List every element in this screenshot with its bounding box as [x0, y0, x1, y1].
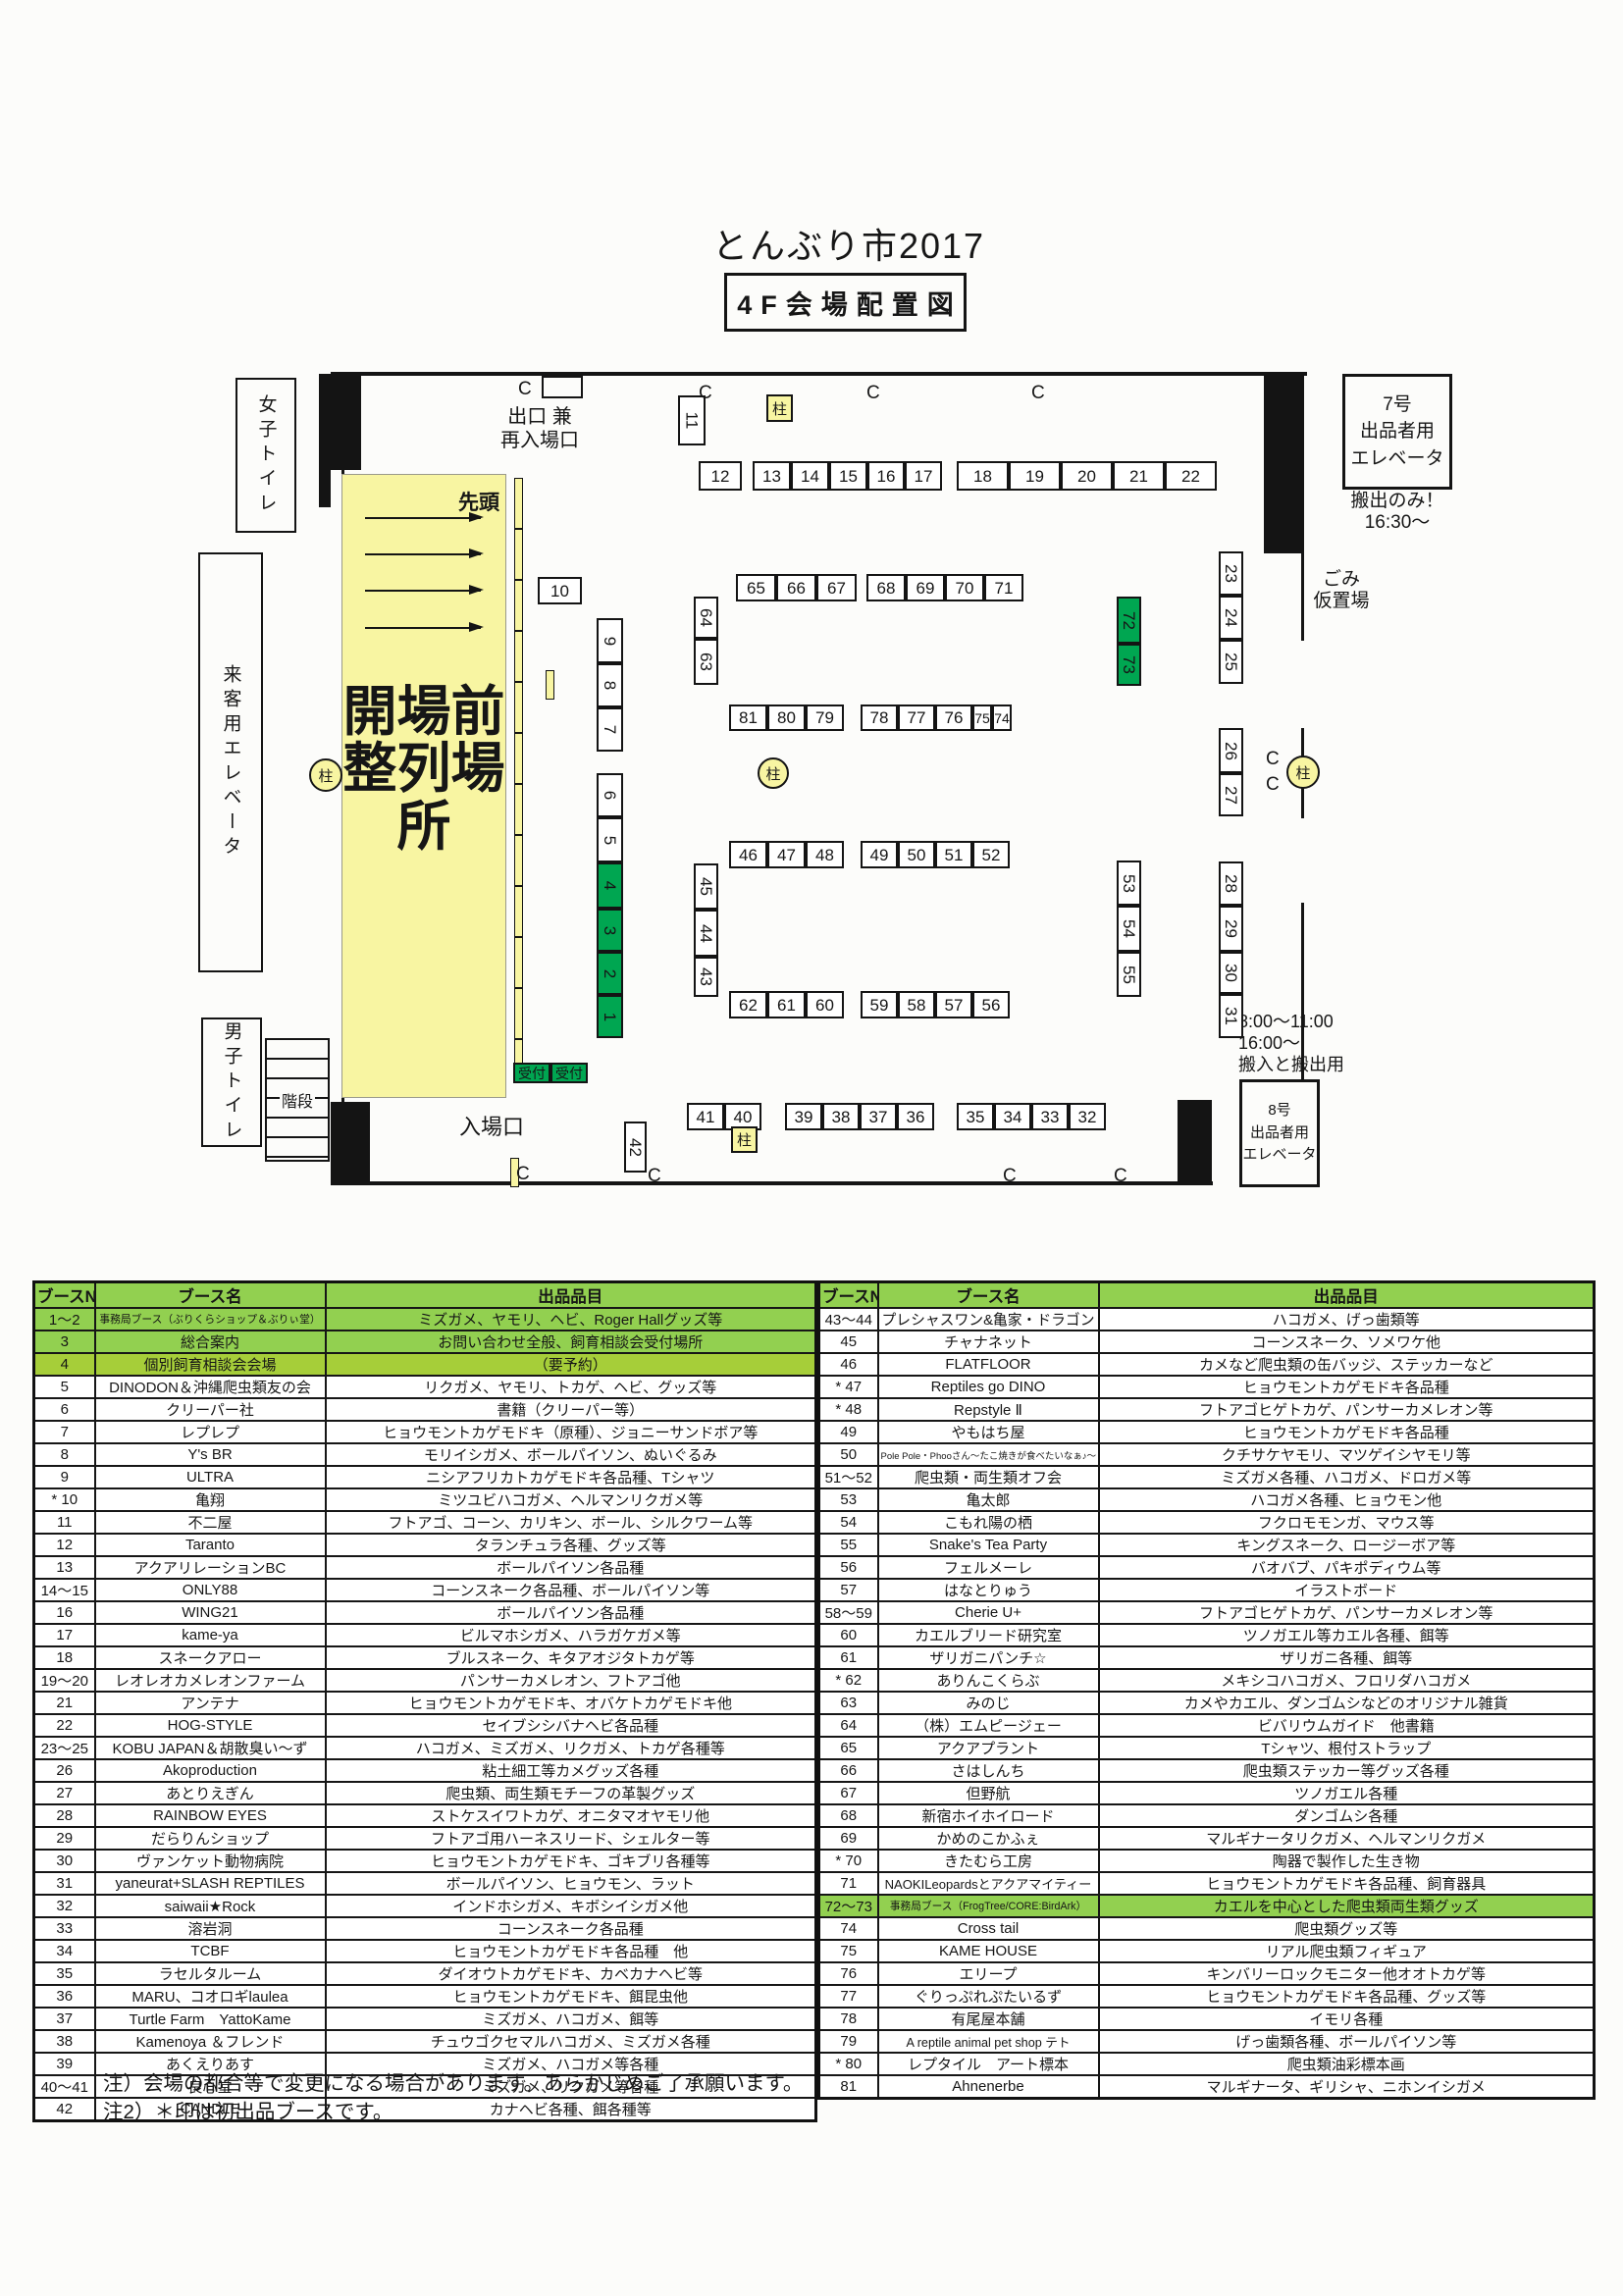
- elevator-7: 7号 出品者用 エレベータ: [1342, 374, 1452, 490]
- cell-items: イモリ各種: [1099, 2008, 1595, 2030]
- cell-no: 17: [34, 1624, 95, 1646]
- queue-arrow: [365, 553, 481, 555]
- cell-items: マルギナータ、ギリシャ、ニホンイシガメ: [1099, 2075, 1595, 2099]
- cell-no: 12: [34, 1534, 95, 1556]
- visitor-elevator: 来客用エレベータ: [198, 552, 263, 972]
- cell-no: 7: [34, 1421, 95, 1443]
- booth-43: 43: [694, 957, 718, 997]
- cell-no: 65: [819, 1737, 878, 1759]
- cell-items: ミズガメ、ヤモリ、ヘビ、Roger Hallグッズ等: [326, 1308, 816, 1331]
- booth-row-71: 71NAOKILeopardsとアクアマイティーヒョウモントカゲモドキ各品種、飼…: [819, 1872, 1595, 1895]
- cell-no: 54: [819, 1511, 878, 1534]
- booth-row-64: 64（株）エムピージェービバリウムガイド 他書籍: [819, 1714, 1595, 1737]
- pillar-marker: 柱: [758, 757, 789, 789]
- booth-53: 53: [1117, 861, 1141, 906]
- reception-desk: 受付: [550, 1063, 588, 1083]
- cell-items: 陶器で製作した生き物: [1099, 1850, 1595, 1872]
- booth-10: 10: [538, 577, 582, 604]
- booth-23: 23: [1219, 551, 1243, 596]
- booth-row-54: 54こもれ陽の栖フクロモモンガ、マウス等: [819, 1511, 1595, 1534]
- cell-items: ダンゴムシ各種: [1099, 1804, 1595, 1827]
- entrance-label: 入場口: [459, 1115, 524, 1140]
- queue-lane-strip: [514, 478, 523, 1067]
- cell-no: 22: [34, 1714, 95, 1737]
- booth-22: 22: [1165, 461, 1217, 491]
- column-marker: C: [1266, 749, 1280, 770]
- booth-74: 74: [992, 704, 1012, 731]
- cell-items: フトアゴヒゲトカゲ、パンサーカメレオン等: [1099, 1601, 1595, 1624]
- cell-no: 11: [34, 1511, 95, 1534]
- booth-5: 5: [597, 817, 623, 862]
- cell-no: 27: [34, 1782, 95, 1804]
- booth-row-69: 69かめのこかふぇマルギナータリクガメ、ヘルマンリクガメ: [819, 1827, 1595, 1850]
- booth-63: 63: [694, 639, 718, 685]
- booth-30: 30: [1219, 952, 1243, 994]
- column-header: ブース名: [95, 1282, 326, 1309]
- booth-44: 44: [694, 910, 718, 957]
- cell-no: 14～15: [34, 1579, 95, 1601]
- cell-no: 69: [819, 1827, 878, 1850]
- booth-69: 69: [906, 574, 945, 601]
- booth-row-27: 27あとりえぎん爬虫類、両生類モチーフの革製グッズ: [34, 1782, 816, 1804]
- cell-no: 74: [819, 1917, 878, 1940]
- womens-toilet: 女子トイレ: [236, 378, 296, 533]
- cell-items: 粘土細工等カメグッズ各種: [326, 1759, 816, 1782]
- booth-34: 34: [994, 1103, 1031, 1130]
- cell-no: 28: [34, 1804, 95, 1827]
- cell-items: ヒョウモントカゲモドキ、ゴキブリ各種等: [326, 1850, 816, 1872]
- column-marker: C: [516, 1164, 530, 1185]
- cell-items: ヒョウモントカゲモドキ（原種）、ジョニーサンドボア等: [326, 1421, 816, 1443]
- cell-name: Taranto: [95, 1534, 326, 1556]
- stairs-label: 階段: [280, 1087, 315, 1113]
- booth-80: 80: [767, 704, 806, 731]
- cell-items: ハコガメ、ミズガメ、リクガメ、トカゲ各種等: [326, 1737, 816, 1759]
- booth-row-1～2: 1～2事務局ブース（ぶりくらショップ＆ぶりぃ堂）ミズガメ、ヤモリ、ヘビ、Roge…: [34, 1308, 816, 1331]
- cell-no: 76: [819, 1962, 878, 1985]
- cell-name: はなとりゅう: [878, 1579, 1099, 1601]
- cell-items: ヒョウモントカゲモドキ、オバケトカゲモドキ他: [326, 1692, 816, 1714]
- cell-name: yaneurat+SLASH REPTILES: [95, 1872, 326, 1895]
- cell-items: ボールパイソン各品種: [326, 1556, 816, 1579]
- booth-55: 55: [1117, 952, 1141, 997]
- booth-row-34: 34TCBFヒョウモントカゲモドキ各品種 他: [34, 1940, 816, 1962]
- visitor-elevator-label: 来客用エレベータ: [218, 664, 244, 861]
- cell-name: アクアプラント: [878, 1737, 1099, 1759]
- cell-items: ハコガメ、げっ歯類等: [1099, 1308, 1595, 1331]
- cell-name: saiwaii★Rock: [95, 1895, 326, 1917]
- cell-name: かめのこかふぇ: [878, 1827, 1099, 1850]
- booth-3: 3: [597, 909, 623, 952]
- cell-items: カメなど爬虫類の缶バッジ、ステッカーなど: [1099, 1353, 1595, 1376]
- cell-no: 33: [34, 1917, 95, 1940]
- booth-table-right: ブースNo.ブース名出品品目43～44プレシャスワン&亀家・ドラゴンハコガメ、げ…: [817, 1280, 1596, 2100]
- booth-41: 41: [687, 1103, 724, 1130]
- booth-33: 33: [1031, 1103, 1069, 1130]
- booth-row-80: * 80レプタイル アート標本爬虫類油彩標本画: [819, 2053, 1595, 2075]
- cell-no: 53: [819, 1488, 878, 1511]
- booth-row-65: 65アクアプラントTシャツ、根付ストラップ: [819, 1737, 1595, 1759]
- cell-items: 爬虫類ステッカー等グッズ各種: [1099, 1759, 1595, 1782]
- booth-table-left: ブースNo.ブース名出品品目1～2事務局ブース（ぶりくらショップ＆ぶりぃ堂）ミズ…: [32, 1280, 817, 2122]
- elevator-7-note: 搬出のみ！ 16:30～: [1342, 491, 1452, 535]
- cell-items: ニシアフリカトカゲモドキ各品種、Tシャツ: [326, 1466, 816, 1488]
- booth-56: 56: [972, 991, 1010, 1018]
- booth-row-51～52: 51～52爬虫類・両生類オフ会ミズガメ各種、ハコガメ、ドロガメ等: [819, 1466, 1595, 1488]
- booth-row-6: 6クリーパー社書籍（クリーパー等）: [34, 1398, 816, 1421]
- booth-row-4: 4個別飼育相談会会場（要予約）: [34, 1353, 816, 1376]
- column-marker: C: [1266, 774, 1280, 796]
- cell-no: 32: [34, 1895, 95, 1917]
- column-header: ブース名: [878, 1282, 1099, 1309]
- booth-row-11: 11不二屋フトアゴ、コーン、カリキン、ボール、シルクワーム等: [34, 1511, 816, 1534]
- cell-no: 34: [34, 1940, 95, 1962]
- garbage-area-label: ごみ 仮置場: [1305, 569, 1378, 613]
- booth-70: 70: [945, 574, 984, 601]
- cell-name: TCBF: [95, 1940, 326, 1962]
- booth-row-57: 57はなとりゅうイラストボード: [819, 1579, 1595, 1601]
- cell-no: * 10: [34, 1488, 95, 1511]
- cell-items: ヒョウモントカゲモドキ各品種、飼育器具: [1099, 1872, 1595, 1895]
- cell-items: キングスネーク、ロージーボア等: [1099, 1534, 1595, 1556]
- cell-name: Snake's Tea Party: [878, 1534, 1099, 1556]
- cell-no: * 62: [819, 1669, 878, 1692]
- booth-row-68: 68新宿ホイホイロードダンゴムシ各種: [819, 1804, 1595, 1827]
- cell-no: 63: [819, 1692, 878, 1714]
- booth-row-72～73: 72～73事務局ブース（FrogTree/CORE:BirdArk）カエルを中心…: [819, 1895, 1595, 1917]
- cell-no: 64: [819, 1714, 878, 1737]
- wall-block-top-left: [319, 374, 361, 470]
- cell-items: 書籍（クリーパー等）: [326, 1398, 816, 1421]
- booth-21: 21: [1113, 461, 1165, 491]
- booth-24: 24: [1219, 596, 1243, 640]
- cell-no: * 47: [819, 1376, 878, 1398]
- booth-row-46: 46FLATFLOORカメなど爬虫類の缶バッジ、ステッカーなど: [819, 1353, 1595, 1376]
- booth-50: 50: [898, 841, 935, 868]
- booth-row-16: 16WING21ボールパイソン各品種: [34, 1601, 816, 1624]
- cell-name: レプレプ: [95, 1421, 326, 1443]
- booth-38: 38: [822, 1103, 860, 1130]
- cell-name: 事務局ブース（ぶりくらショップ＆ぶりぃ堂）: [95, 1308, 326, 1331]
- cell-name: RAINBOW EYES: [95, 1804, 326, 1827]
- booth-row-62: * 62ありんこくらぶメキシコハコガメ、フロリダハコガメ: [819, 1669, 1595, 1692]
- cell-no: * 80: [819, 2053, 878, 2075]
- cell-name: Y's BR: [95, 1443, 326, 1466]
- booth-68: 68: [866, 574, 906, 601]
- cell-items: セイブシシバナヘビ各品種: [326, 1714, 816, 1737]
- cell-no: 21: [34, 1692, 95, 1714]
- cell-name: アンテナ: [95, 1692, 326, 1714]
- cell-items: フトアゴ、コーン、カリキン、ボール、シルクワーム等: [326, 1511, 816, 1534]
- queue-area: 先頭 開場前整列場所: [341, 474, 506, 1098]
- column-marker: C: [1114, 1166, 1127, 1187]
- booth-row-67: 67但野航ツノガエル各種: [819, 1782, 1595, 1804]
- cell-name: Cross tail: [878, 1917, 1099, 1940]
- booth-52: 52: [972, 841, 1010, 868]
- booth-32: 32: [1069, 1103, 1106, 1130]
- cell-name: DINODON＆沖縄爬虫類友の会: [95, 1376, 326, 1398]
- booth-row-58～59: 58～59Cherie U+フトアゴヒゲトカゲ、パンサーカメレオン等: [819, 1601, 1595, 1624]
- cell-no: 6: [34, 1398, 95, 1421]
- cell-items: 爬虫類、両生類モチーフの革製グッズ: [326, 1782, 816, 1804]
- cell-items: リクガメ、ヤモリ、トカゲ、ヘビ、グッズ等: [326, 1376, 816, 1398]
- cell-items: ミズガメ、ハコガメ、餌等: [326, 2008, 816, 2030]
- booth-row-56: 56フェルメーレバオバブ、パキポディウム等: [819, 1556, 1595, 1579]
- booth-67: 67: [816, 574, 857, 601]
- cell-name: みのじ: [878, 1692, 1099, 1714]
- floor-plan: 女子トイレ 来客用エレベータ 男子トイレ 階段 出口 兼 再入場口 入場口 先頭…: [0, 0, 1623, 1266]
- cell-no: 50: [819, 1443, 878, 1466]
- cell-no: 72～73: [819, 1895, 878, 1917]
- booth-19: 19: [1009, 461, 1061, 491]
- column-header: ブースNo.: [34, 1282, 95, 1309]
- booth-row-22: 22HOG-STYLEセイブシシバナヘビ各品種: [34, 1714, 816, 1737]
- cell-name: 亀翔: [95, 1488, 326, 1511]
- booth-row-10: * 10亀翔ミツユビハコガメ、ヘルマンリクガメ等: [34, 1488, 816, 1511]
- cell-no: 18: [34, 1646, 95, 1669]
- booth-57: 57: [935, 991, 972, 1018]
- wall-block-top-right: [1264, 374, 1304, 553]
- cell-items: ハコガメ各種、ヒョウモン他: [1099, 1488, 1595, 1511]
- booth-77: 77: [898, 704, 935, 731]
- booth-row-78: 78有尾屋本舗イモリ各種: [819, 2008, 1595, 2030]
- booth-62: 62: [729, 991, 767, 1018]
- booth-28: 28: [1219, 861, 1243, 906]
- cell-name: kame-ya: [95, 1624, 326, 1646]
- wall-block-top-left-2: [319, 470, 331, 507]
- cell-items: げっ歯類各種、ボールパイソン等: [1099, 2030, 1595, 2053]
- booth-row-53: 53亀太郎ハコガメ各種、ヒョウモン他: [819, 1488, 1595, 1511]
- cell-items: カメやカエル、ダンゴムシなどのオリジナル雑貨: [1099, 1692, 1595, 1714]
- cell-items: メキシコハコガメ、フロリダハコガメ: [1099, 1669, 1595, 1692]
- cell-items: （要予約）: [326, 1353, 816, 1376]
- column-marker: C: [1003, 1166, 1017, 1187]
- cell-no: * 70: [819, 1850, 878, 1872]
- cell-no: 51～52: [819, 1466, 878, 1488]
- booth-27: 27: [1219, 773, 1243, 816]
- booth-row-28: 28RAINBOW EYESストケスイワトカゲ、オニタマオヤモリ他: [34, 1804, 816, 1827]
- booth-row-79: 79A reptile animal pet shop テトげっ歯類各種、ボール…: [819, 2030, 1595, 2053]
- footnote-1: 注）会場の都合等で変更になる場合があります。あらかじめご了承願います。: [103, 2070, 803, 2099]
- booth-45: 45: [694, 863, 718, 910]
- cell-name: フェルメーレ: [878, 1556, 1099, 1579]
- booth-17: 17: [905, 461, 942, 491]
- cell-name: Kamenoya ＆フレンド: [95, 2030, 326, 2053]
- cell-items: タランチュラ各種、グッズ等: [326, 1534, 816, 1556]
- cell-no: 60: [819, 1624, 878, 1646]
- booth-4: 4: [597, 862, 623, 909]
- booth-row-35: 35ラセルタルームダイオウトカゲモドキ、カベカナヘビ等: [34, 1962, 816, 1985]
- booth-8: 8: [597, 663, 623, 707]
- cell-no: 43～44: [819, 1308, 878, 1331]
- booth-row-37: 37Turtle Farm YattoKameミズガメ、ハコガメ、餌等: [34, 2008, 816, 2030]
- cell-name: プレシャスワン&亀家・ドラゴン: [878, 1308, 1099, 1331]
- cell-no: 79: [819, 2030, 878, 2053]
- cell-no: 1～2: [34, 1308, 95, 1331]
- cell-name: 但野航: [878, 1782, 1099, 1804]
- cell-name: Reptiles go DINO: [878, 1376, 1099, 1398]
- booth-row-30: 30ヴァンケット動物病院ヒョウモントカゲモドキ、ゴキブリ各種等: [34, 1850, 816, 1872]
- footnotes: 注）会場の都合等で変更になる場合があります。あらかじめご了承願います。 注2）＊…: [103, 2070, 803, 2126]
- booth-15: 15: [829, 461, 867, 491]
- booth-row-38: 38Kamenoya ＆フレンドチュウゴクセマルハコガメ、ミズガメ各種: [34, 2030, 816, 2053]
- cell-name: 爬虫類・両生類オフ会: [878, 1466, 1099, 1488]
- cell-no: 23～25: [34, 1737, 95, 1759]
- cell-items: パンサーカメレオン、フトアゴ他: [326, 1669, 816, 1692]
- booth-13: 13: [753, 461, 791, 491]
- booth-row-17: 17kame-yaビルマホシガメ、ハラガケガメ等: [34, 1624, 816, 1646]
- booth-row-50: 50Pole Pole・Phooさん～たこ焼きが食べたいなぁ♪～クチサケヤモリ、…: [819, 1443, 1595, 1466]
- cell-no: 78: [819, 2008, 878, 2030]
- booth-65: 65: [736, 574, 776, 601]
- cell-items: ボールパイソン、ヒョウモン、ラット: [326, 1872, 816, 1895]
- booth-row-48: * 48Repstyle Ⅱフトアゴヒゲトカゲ、パンサーカメレオン等: [819, 1398, 1595, 1421]
- cell-name: MARU、コオロギlaulea: [95, 1985, 326, 2008]
- booth-46: 46: [729, 841, 767, 868]
- booth-row-60: 60カエルブリード研究室ツノガエル等カエル各種、餌等: [819, 1624, 1595, 1646]
- cell-items: クチサケヤモリ、マツゲイシヤモリ等: [1099, 1443, 1595, 1466]
- wall-block-bottom-left: [331, 1102, 370, 1185]
- booth-row-45: 45チャナネットコーンスネーク、ソメワケ他: [819, 1331, 1595, 1353]
- cell-no: 77: [819, 1985, 878, 2008]
- cell-items: ツノガエル等カエル各種、餌等: [1099, 1624, 1595, 1646]
- booth-row-70: * 70きたむら工房陶器で製作した生き物: [819, 1850, 1595, 1872]
- booth-31: 31: [1219, 994, 1243, 1038]
- elevator-8-note: 8:00～11:00 16:00～ 搬入と搬出用: [1238, 1012, 1344, 1076]
- wall-top: [331, 372, 1307, 376]
- booth-73: 73: [1117, 644, 1141, 686]
- booth-36: 36: [897, 1103, 934, 1130]
- booth-18: 18: [957, 461, 1009, 491]
- mens-toilet: 男子トイレ: [201, 1018, 262, 1147]
- cell-items: フクロモモンガ、マウス等: [1099, 1511, 1595, 1534]
- table-header-row: ブースNo.ブース名出品品目: [819, 1282, 1595, 1309]
- column-header: 出品品目: [326, 1282, 816, 1309]
- cell-no: 30: [34, 1850, 95, 1872]
- queue-arrow: [365, 590, 481, 592]
- cell-items: ボールパイソン各品種: [326, 1601, 816, 1624]
- booth-row-29: 29だらりんショップフトアゴ用ハーネスリード、シェルター等: [34, 1827, 816, 1850]
- cell-no: 39: [34, 2053, 95, 2075]
- booth-47: 47: [767, 841, 806, 868]
- booth-75: 75: [972, 704, 992, 731]
- booth-row-21: 21アンテナヒョウモントカゲモドキ、オバケトカゲモドキ他: [34, 1692, 816, 1714]
- booth-79: 79: [806, 704, 844, 731]
- cell-items: カエルを中心とした爬虫類両生類グッズ: [1099, 1895, 1595, 1917]
- cell-items: キンバリーロックモニター他オオトカゲ等: [1099, 1962, 1595, 1985]
- footnote-2: 注2）＊印は初出品ブースです。: [103, 2099, 803, 2127]
- cell-no: 36: [34, 1985, 95, 2008]
- booth-64: 64: [694, 597, 718, 639]
- booth-row-81: 81Ahnenerbeマルギナータ、ギリシャ、ニホンイシガメ: [819, 2075, 1595, 2099]
- booth-row-55: 55Snake's Tea Partyキングスネーク、ロージーボア等: [819, 1534, 1595, 1556]
- booth-61: 61: [767, 991, 806, 1018]
- booth-row-23～25: 23～25KOBU JAPAN＆胡散臭い～ずハコガメ、ミズガメ、リクガメ、トカゲ…: [34, 1737, 816, 1759]
- booth-row-61: 61ザリガニパンチ☆ザリガニ各種、餌等: [819, 1646, 1595, 1669]
- cell-name: 個別飼育相談会会場: [95, 1353, 326, 1376]
- cell-no: 29: [34, 1827, 95, 1850]
- cell-no: 38: [34, 2030, 95, 2053]
- booth-row-36: 36MARU、コオロギlauleaヒョウモントカゲモドキ、餌昆虫他: [34, 1985, 816, 2008]
- booth-row-13: 13アクアリレーションBCボールパイソン各品種: [34, 1556, 816, 1579]
- cell-no: * 48: [819, 1398, 878, 1421]
- cell-no: 3: [34, 1331, 95, 1353]
- cell-name: ぐりっぷれぷたいるず: [878, 1985, 1099, 2008]
- cell-no: 57: [819, 1579, 878, 1601]
- booth-row-14～15: 14～15ONLY88コーンスネーク各品種、ボールパイソン等: [34, 1579, 816, 1601]
- cell-no: 5: [34, 1376, 95, 1398]
- exit-label: 出口 兼 再入場口: [489, 406, 591, 452]
- cell-no: 58～59: [819, 1601, 878, 1624]
- booth-12: 12: [699, 461, 742, 491]
- booth-14: 14: [791, 461, 829, 491]
- cell-name: WING21: [95, 1601, 326, 1624]
- cell-name: HOG-STYLE: [95, 1714, 326, 1737]
- cell-no: 68: [819, 1804, 878, 1827]
- booth-9: 9: [597, 618, 623, 663]
- column-header: 出品品目: [1099, 1282, 1595, 1309]
- column-marker: C: [518, 379, 532, 400]
- cell-name: ラセルタルーム: [95, 1962, 326, 1985]
- booth-row-7: 7レプレプヒョウモントカゲモドキ（原種）、ジョニーサンドボア等: [34, 1421, 816, 1443]
- cell-items: イラストボード: [1099, 1579, 1595, 1601]
- booth-60: 60: [806, 991, 844, 1018]
- cell-no: 61: [819, 1646, 878, 1669]
- booth-1: 1: [597, 995, 623, 1038]
- cell-name: KOBU JAPAN＆胡散臭い～ず: [95, 1737, 326, 1759]
- cell-name: A reptile animal pet shop テト: [878, 2030, 1099, 2053]
- cell-no: 31: [34, 1872, 95, 1895]
- cell-items: ヒョウモントカゲモドキ各品種 他: [326, 1940, 816, 1962]
- booth-row-63: 63みのじカメやカエル、ダンゴムシなどのオリジナル雑貨: [819, 1692, 1595, 1714]
- cell-items: ザリガニ各種、餌等: [1099, 1646, 1595, 1669]
- cell-name: スネークアロー: [95, 1646, 326, 1669]
- booth-row-32: 32saiwaii★Rockインドホシガメ、キボシイシガメ他: [34, 1895, 816, 1917]
- cell-name: だらりんショップ: [95, 1827, 326, 1850]
- cell-items: ミツユビハコガメ、ヘルマンリクガメ等: [326, 1488, 816, 1511]
- booth-row-43～44: 43～44プレシャスワン&亀家・ドラゴンハコガメ、げっ歯類等: [819, 1308, 1595, 1331]
- cell-items: リアル爬虫類フィギュア: [1099, 1940, 1595, 1962]
- cell-name: Cherie U+: [878, 1601, 1099, 1624]
- cell-items: ヒョウモントカゲモドキ各品種、グッズ等: [1099, 1985, 1595, 2008]
- cell-name: チャナネット: [878, 1331, 1099, 1353]
- booth-row-9: 9ULTRAニシアフリカトカゲモドキ各品種、Tシャツ: [34, 1466, 816, 1488]
- cell-items: Tシャツ、根付ストラップ: [1099, 1737, 1595, 1759]
- cell-items: ヒョウモントカゲモドキ、餌昆虫他: [326, 1985, 816, 2008]
- booth-16: 16: [867, 461, 905, 491]
- booth-58: 58: [898, 991, 935, 1018]
- cell-items: ヒョウモントカゲモドキ各品種: [1099, 1376, 1595, 1398]
- column-marker: C: [1031, 383, 1045, 404]
- cell-name: あとりえぎん: [95, 1782, 326, 1804]
- cell-name: 亀太郎: [878, 1488, 1099, 1511]
- column-header: ブースNo.: [819, 1282, 878, 1309]
- cell-name: アクアリレーションBC: [95, 1556, 326, 1579]
- cell-items: フトアゴヒゲトカゲ、パンサーカメレオン等: [1099, 1398, 1595, 1421]
- cell-name: NAOKILeopardsとアクアマイティー: [878, 1872, 1099, 1895]
- column-marker: C: [866, 383, 880, 404]
- column-marker: C: [648, 1166, 661, 1187]
- column-marker: C: [699, 383, 712, 404]
- cell-name: Repstyle Ⅱ: [878, 1398, 1099, 1421]
- cell-no: 55: [819, 1534, 878, 1556]
- wall-right-a: [1301, 553, 1304, 641]
- booth-35: 35: [957, 1103, 994, 1130]
- cell-no: 66: [819, 1759, 878, 1782]
- booth-2: 2: [597, 952, 623, 995]
- booth-76: 76: [935, 704, 972, 731]
- queue-tick: [546, 670, 554, 700]
